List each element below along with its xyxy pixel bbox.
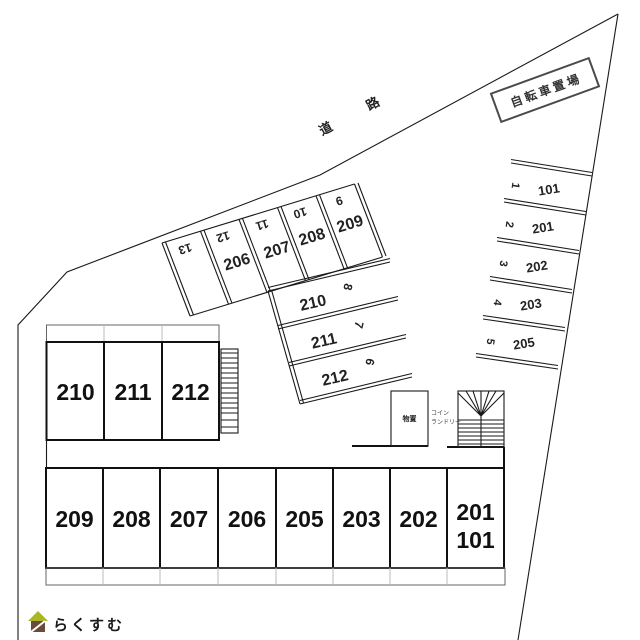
logo-roof-icon — [28, 611, 48, 621]
room-label: 206 — [228, 506, 266, 532]
stall-unit-label: 201 — [531, 218, 555, 236]
room-label: 207 — [170, 506, 208, 532]
stall-number: 4 — [490, 299, 503, 308]
room-label: 203 — [342, 506, 380, 532]
stall-number: 1 — [509, 182, 522, 190]
stall-number: 8 — [340, 282, 355, 292]
stall-number: 3 — [497, 260, 510, 268]
right-parking-column: 1 2 3 4 5 101 201 202 203 205 — [476, 160, 592, 370]
stall-unit-label: 101 — [537, 180, 561, 198]
stall-unit-label: 202 — [525, 257, 549, 275]
coin-laundry-label-line1: コイン — [431, 410, 449, 417]
road-label-char1: 道 — [316, 119, 335, 138]
logo: らくすむ — [28, 611, 125, 634]
road-label-char2: 路 — [363, 93, 382, 113]
exterior-stairs — [221, 349, 238, 433]
site-boundary-left — [18, 14, 618, 640]
stall-number: 12 — [214, 228, 231, 245]
upper-building: 210 211 212 — [47, 325, 239, 468]
staircase-symbol — [458, 391, 504, 447]
room-label: 211 — [114, 379, 151, 405]
stall-number: 9 — [334, 193, 345, 208]
stall-unit-label: 212 — [320, 367, 350, 390]
stall-unit-label: 209 — [335, 212, 366, 236]
stall-unit-label: 203 — [519, 295, 543, 313]
site-boundary-right — [518, 14, 618, 640]
room-label: 202 — [399, 506, 437, 532]
stall-number: 6 — [362, 357, 377, 367]
storage-label: 物置 — [403, 414, 417, 423]
stall-number: 11 — [254, 216, 271, 233]
site-plan-drawing: 道 路 自転車置場 1 2 3 4 5 101 201 202 203 205 — [0, 0, 640, 640]
bicycle-parking-area: 自転車置場 — [491, 58, 599, 122]
logo-text: らくすむ — [53, 617, 125, 634]
room-label: 209 — [55, 506, 93, 532]
room-label: 210 — [56, 379, 94, 405]
stall-row-top-line — [162, 184, 355, 243]
stall-number: 7 — [351, 320, 366, 330]
road-label: 道 路 — [316, 93, 382, 138]
stall-unit-label: 206 — [222, 250, 253, 274]
room-label: 101 — [456, 527, 495, 553]
row-parking-strips: 8 7 6 210 211 212 — [268, 259, 412, 405]
room-label: 208 — [112, 506, 151, 532]
bicycle-parking-label: 自転車置場 — [508, 70, 584, 110]
utility-area: 物置 コイン ランドリー — [352, 391, 504, 468]
room-label: 201 — [456, 499, 495, 525]
stall-unit-label: 211 — [310, 330, 339, 352]
room-label: 205 — [285, 506, 324, 532]
lower-building: 209 208 207 206 205 203 202 201 101 — [46, 468, 505, 585]
stall-number: 2 — [503, 221, 516, 229]
coin-laundry-label-line2: ランドリー — [431, 419, 461, 426]
stall-number: 13 — [176, 240, 193, 257]
diagonal-parking-row: 13 12 11 10 9 206 207 208 209 — [162, 183, 386, 316]
stall-unit-label: 207 — [262, 238, 293, 262]
upper-balcony — [47, 325, 220, 342]
stall-unit-label: 208 — [297, 225, 328, 249]
stall-unit-label: 210 — [298, 292, 328, 315]
room-label: 212 — [171, 379, 209, 405]
stall-unit-label: 205 — [512, 334, 536, 352]
stall-number: 10 — [291, 204, 308, 221]
site-plan-page: 道 路 自転車置場 1 2 3 4 5 101 201 202 203 205 — [0, 0, 640, 640]
stall-number: 5 — [484, 338, 497, 346]
